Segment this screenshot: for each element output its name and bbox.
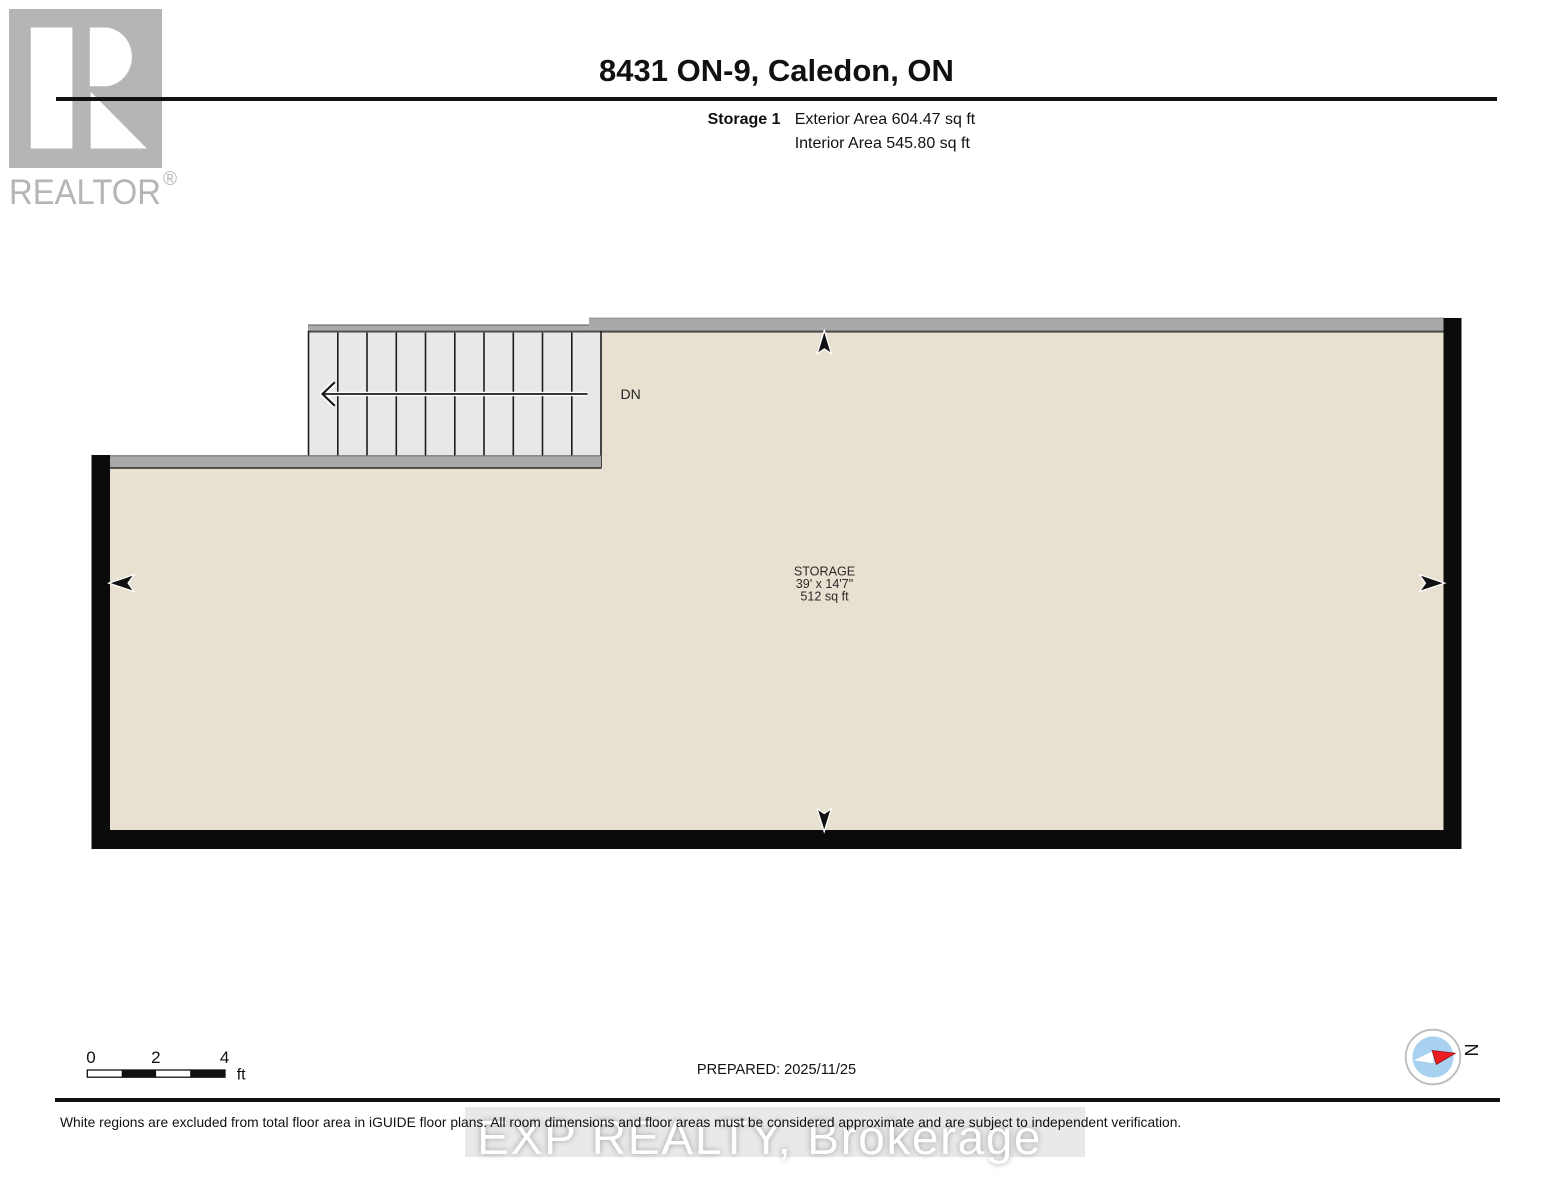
svg-text:512 sq ft: 512 sq ft: [800, 590, 849, 604]
svg-text:N: N: [1461, 1044, 1481, 1057]
svg-text:DN: DN: [621, 386, 641, 402]
